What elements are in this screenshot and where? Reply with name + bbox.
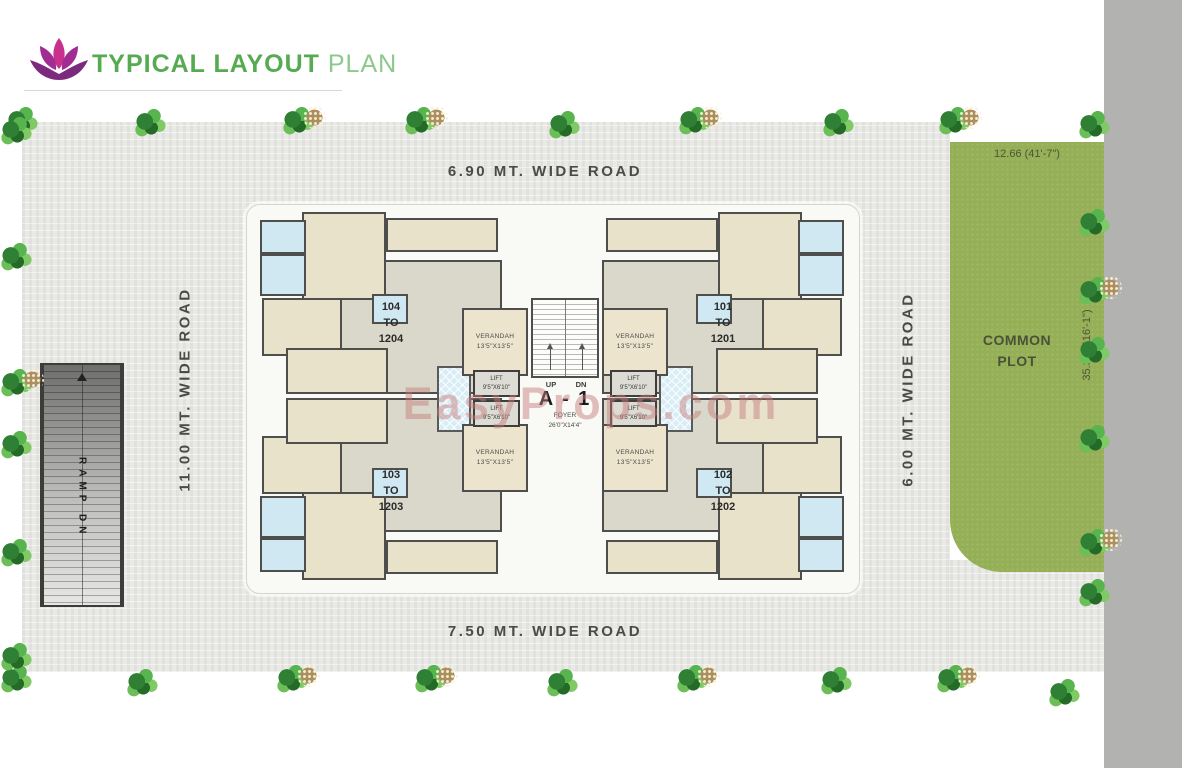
bathroom-room [798,220,844,254]
lift-name: LIFT [490,376,502,382]
unit-number-end: 1203 [346,500,436,516]
road-label-top: 6.90 MT. WIDE ROAD [395,163,695,180]
bathroom-room [798,538,844,572]
bathroom-room [260,538,306,572]
plot-width-dimension: 12.66 (41'-7") [950,148,1104,160]
unit-label-104: 104 TO 1204 [346,300,436,348]
common-plot-line1: COMMON [950,330,1084,351]
unit-number: 102 [678,468,768,484]
plot-height-dimension: 35.39 (116'-1") [1081,270,1093,420]
unit-number: 101 [678,300,768,316]
bedroom-room [716,348,818,394]
bedroom-room [762,436,842,494]
unit-number-end: 1201 [678,332,768,348]
lift-name: LIFT [490,406,502,412]
unit-number: 104 [346,300,436,316]
staircase-divider [565,300,566,376]
bathroom-room [260,496,306,538]
foyer-label: FOYER 26'0"X14'4" [515,411,615,432]
site-ground-right [950,560,1104,672]
unit-label-103: 103 TO 1203 [346,468,436,516]
parking-ramp: RAMP DN [40,363,124,607]
unit-number: 103 [346,468,436,484]
road-label-left: 11.00 MT. WIDE ROAD [177,265,194,515]
bathroom-room [260,220,306,254]
bedroom-room [386,218,498,252]
shrub-icon [126,668,162,700]
verandah-top-left: VERANDAH 13'5"X13'5" [462,308,528,376]
lift-name: LIFT [627,406,639,412]
verandah-name: VERANDAH [616,449,655,456]
verandah-bottom-right: VERANDAH 13'5"X13'5" [602,424,668,492]
lift-size: 9'5"X6'10" [620,385,647,391]
page-title: TYPICAL LAYOUT PLAN [92,50,397,79]
verandah-name: VERANDAH [476,333,515,340]
bedroom-room [286,348,388,394]
lift-name: LIFT [627,376,639,382]
lift-size: 9'5"X6'10" [483,415,510,421]
stair-up-arrow-icon [550,348,551,370]
lift-bottom-right: LIFT 9'5"X6'10" [610,400,657,427]
unit-number-end: 1204 [346,332,436,348]
verandah-bottom-left: VERANDAH 13'5"X13'5" [462,424,528,492]
lift-top-left: LIFT 9'5"X6'10" [473,370,520,397]
bedroom-room [718,212,802,300]
bedroom-room [606,540,718,574]
ramp-direction-arrow-icon [77,373,87,381]
unit-to: TO [678,484,768,500]
bedroom-room [302,212,386,300]
foyer-size: 26'0"X14'4" [548,422,581,429]
ramp-label: RAMP DN [77,457,88,538]
staircase [531,298,599,378]
foyer-name: FOYER [554,412,576,419]
unit-to: TO [346,316,436,332]
layout-plan-page: TYPICAL LAYOUT PLAN 12.66 (41'-7") COMMO… [0,0,1182,768]
lift-size: 9'5"X6'10" [620,415,647,421]
shrub-icon [1048,678,1084,710]
verandah-top-right: VERANDAH 13'5"X13'5" [602,308,668,376]
bedroom-room [262,436,342,494]
bedroom-room [386,540,498,574]
title-underline [24,90,342,91]
road-label-right: 6.00 MT. WIDE ROAD [900,265,917,515]
verandah-size: 13'5"X13'5" [617,459,653,466]
verandah-size: 13'5"X13'5" [477,343,513,350]
bedroom-room [716,398,818,444]
lift-size: 9'5"X6'10" [483,385,510,391]
lotus-logo-icon [26,34,92,86]
verandah-name: VERANDAH [476,449,515,456]
bathroom-room [260,254,306,296]
page-title-light: PLAN [328,50,397,78]
bathroom-room [798,254,844,296]
bathroom-room [798,496,844,538]
unit-to: TO [346,484,436,500]
lift-top-right: LIFT 9'5"X6'10" [610,370,657,397]
verandah-size: 13'5"X13'5" [617,343,653,350]
unit-label-102: 102 TO 1202 [678,468,768,516]
lift-bottom-left: LIFT 9'5"X6'10" [473,400,520,427]
unit-number-end: 1202 [678,500,768,516]
shrub-icon [546,668,582,700]
verandah-name: VERANDAH [616,333,655,340]
bedroom-room [286,398,388,444]
unit-to: TO [678,316,768,332]
building-name: A - 1 [520,388,610,411]
unit-label-101: 101 TO 1201 [678,300,768,348]
common-plot-line2: PLOT [950,351,1084,372]
common-plot-label: COMMON PLOT [950,330,1084,372]
adjacent-plot-strip [1104,0,1182,768]
road-label-bottom: 7.50 MT. WIDE ROAD [395,623,695,640]
bedroom-room [606,218,718,252]
page-title-strong: TYPICAL LAYOUT [92,50,320,78]
flower-cluster-icon [959,106,982,129]
stair-down-arrow-icon [582,348,583,370]
verandah-size: 13'5"X13'5" [477,459,513,466]
